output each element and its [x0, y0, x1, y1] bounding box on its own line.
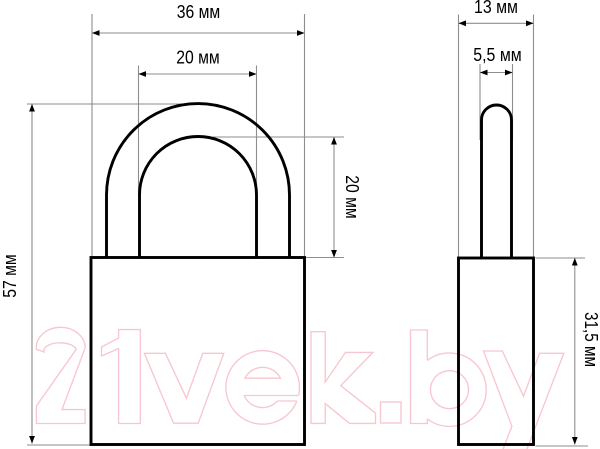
svg-text:57 мм: 57 мм	[0, 254, 20, 298]
svg-text:31,5 мм: 31,5 мм	[581, 312, 600, 367]
svg-text:20 мм: 20 мм	[342, 175, 363, 219]
svg-text:13 мм: 13 мм	[474, 0, 518, 17]
svg-text:5,5 мм: 5,5 мм	[473, 44, 521, 65]
svg-text:20 мм: 20 мм	[176, 46, 220, 67]
svg-text:36 мм: 36 мм	[177, 1, 221, 22]
